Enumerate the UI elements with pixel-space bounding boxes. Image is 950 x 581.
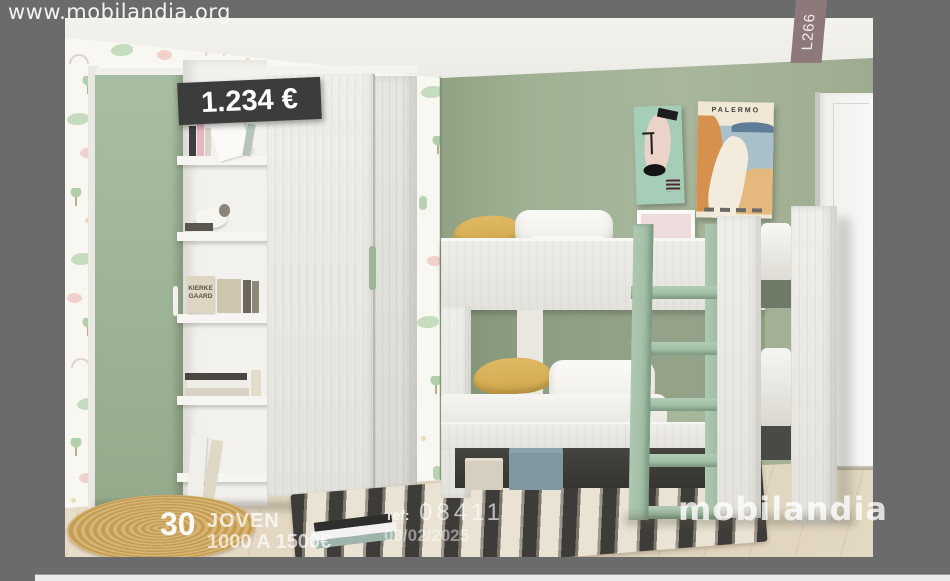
wallpaper-motif bbox=[69, 438, 83, 456]
site-url: www.mobilandia.org bbox=[8, 0, 231, 24]
book-stack bbox=[185, 388, 249, 396]
door-panel-groove2 bbox=[833, 103, 869, 104]
top-bunk-end-gap bbox=[761, 280, 791, 308]
ref-label: ref: bbox=[387, 507, 410, 523]
book-spine bbox=[252, 281, 259, 313]
bottom-bunk-end-gap bbox=[761, 426, 791, 460]
category-label: JOVEN bbox=[207, 510, 280, 533]
plush-sheep-head bbox=[219, 204, 230, 217]
green-door-top-cap bbox=[95, 68, 183, 75]
wallpaper-motif bbox=[111, 44, 133, 56]
shelf-board-2 bbox=[177, 232, 277, 241]
eye-line bbox=[642, 132, 654, 134]
wardrobe-green-handle bbox=[369, 246, 376, 290]
book-stack bbox=[187, 380, 247, 388]
bed-right-column bbox=[717, 216, 761, 518]
wallpaper-motif bbox=[69, 188, 83, 206]
corner-wardrobe-right-door bbox=[375, 76, 417, 494]
lips-shape bbox=[643, 164, 665, 177]
price-range-label: 1000 A 1500€ bbox=[207, 531, 331, 554]
page-tab-label: L266 bbox=[799, 13, 819, 50]
book-spine bbox=[189, 126, 196, 156]
book-spine bbox=[243, 280, 251, 313]
wallpaper-motif bbox=[69, 54, 89, 64]
watermark: mobilandia bbox=[678, 490, 888, 528]
ref-value: 08411 bbox=[419, 499, 504, 527]
book-spine bbox=[205, 128, 211, 156]
book-stack bbox=[185, 373, 247, 380]
price-tag: 1.234 € bbox=[177, 77, 322, 125]
page-tab[interactable]: L266 bbox=[790, 0, 827, 63]
wallpaper-motif bbox=[67, 113, 89, 125]
book-upright bbox=[251, 370, 261, 396]
wallpaper-motif bbox=[419, 196, 427, 210]
poster-face-art bbox=[633, 105, 684, 205]
shelf-board-3 bbox=[177, 314, 277, 323]
radio-box bbox=[185, 223, 213, 231]
storage-box-blue bbox=[509, 448, 563, 490]
green-door-handle bbox=[173, 286, 178, 316]
palermo-title: PALERMO bbox=[698, 106, 774, 114]
wallpaper-motif bbox=[71, 498, 76, 503]
storage-box-beige bbox=[465, 458, 503, 490]
shelf-board-4 bbox=[177, 396, 277, 405]
book-cover-kierkegaard: KIERKE GAARD bbox=[187, 276, 214, 313]
poster-palermo: PALERMO bbox=[696, 101, 774, 218]
catalog-page: { "app": { "site_url": "www.mobilandia.o… bbox=[0, 0, 950, 580]
date-label: 08/02/2025 bbox=[384, 526, 469, 546]
top-bunk-end-bedding bbox=[761, 223, 791, 283]
wallpaper-motif bbox=[67, 293, 82, 303]
book-cover bbox=[217, 279, 241, 313]
page-number: 30 bbox=[160, 506, 196, 543]
bottom-bunk-base bbox=[441, 422, 711, 450]
corner-wardrobe-left-door bbox=[267, 72, 373, 496]
bed-end-panel bbox=[791, 206, 837, 523]
palermo-mountain bbox=[731, 122, 773, 133]
bed-side-wall-shadow bbox=[835, 218, 851, 518]
wallpaper-motif bbox=[421, 436, 426, 441]
caption-lines bbox=[666, 179, 680, 191]
wallpaper-motif bbox=[157, 50, 172, 60]
wardrobe-green-door bbox=[95, 68, 183, 510]
book-spine bbox=[197, 124, 204, 156]
bottom-bunk-end-bedding bbox=[761, 348, 791, 428]
wallpaper-motif bbox=[417, 316, 439, 328]
